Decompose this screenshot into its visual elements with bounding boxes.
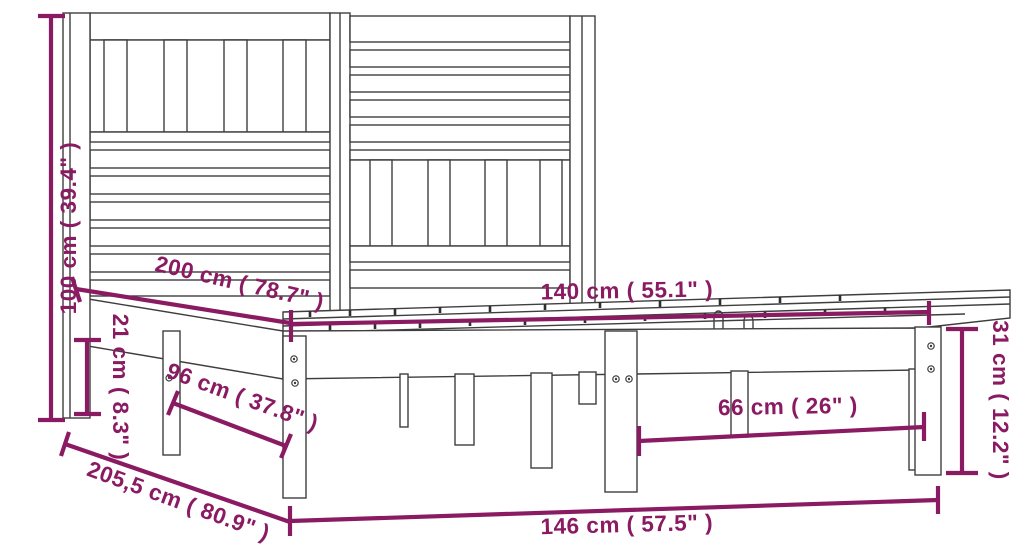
back-leg (455, 374, 474, 445)
headboard-slat (104, 40, 127, 132)
product-diagram: 100 cm ( 39.4" ) 200 cm ( 78.7" ) 140 cm… (0, 0, 1013, 552)
dimension-label: 146 cm ( 57.5" ) (540, 510, 713, 540)
dimension-total-width: 146 cm ( 57.5" ) (290, 486, 938, 539)
front-center-leg (605, 331, 637, 492)
dimension-label: 140 cm ( 55.1" ) (540, 276, 713, 304)
headboard-slat (428, 160, 450, 246)
headboard-slat (540, 160, 562, 246)
dimension-label: 205,5 cm ( 80.9" ) (84, 456, 273, 545)
headboard-slat (283, 40, 306, 132)
dimension-label: 21 cm ( 8.3" ) (108, 314, 133, 460)
front-right-corner-leg (915, 327, 941, 475)
dimension-label: 31 cm ( 12.2" ) (988, 320, 1013, 480)
bed-frame-illustration: 100 cm ( 39.4" ) 200 cm ( 78.7" ) 140 cm… (0, 0, 1013, 552)
back-leg (531, 373, 552, 468)
headboard-slat (224, 40, 247, 132)
headboard-right-panel (350, 16, 595, 308)
headboard-slat (370, 160, 392, 246)
headboard-slat (485, 160, 507, 246)
dimension-label: 66 cm ( 26" ) (718, 393, 858, 420)
back-leg (579, 372, 596, 404)
dimension-frame-height: 31 cm ( 12.2" ) (946, 320, 1013, 480)
headboard-slat (164, 40, 187, 132)
dimension-front-leg-spacing: 66 cm ( 26" ) (639, 393, 924, 456)
back-leg (400, 374, 408, 427)
front-rail (283, 328, 918, 379)
